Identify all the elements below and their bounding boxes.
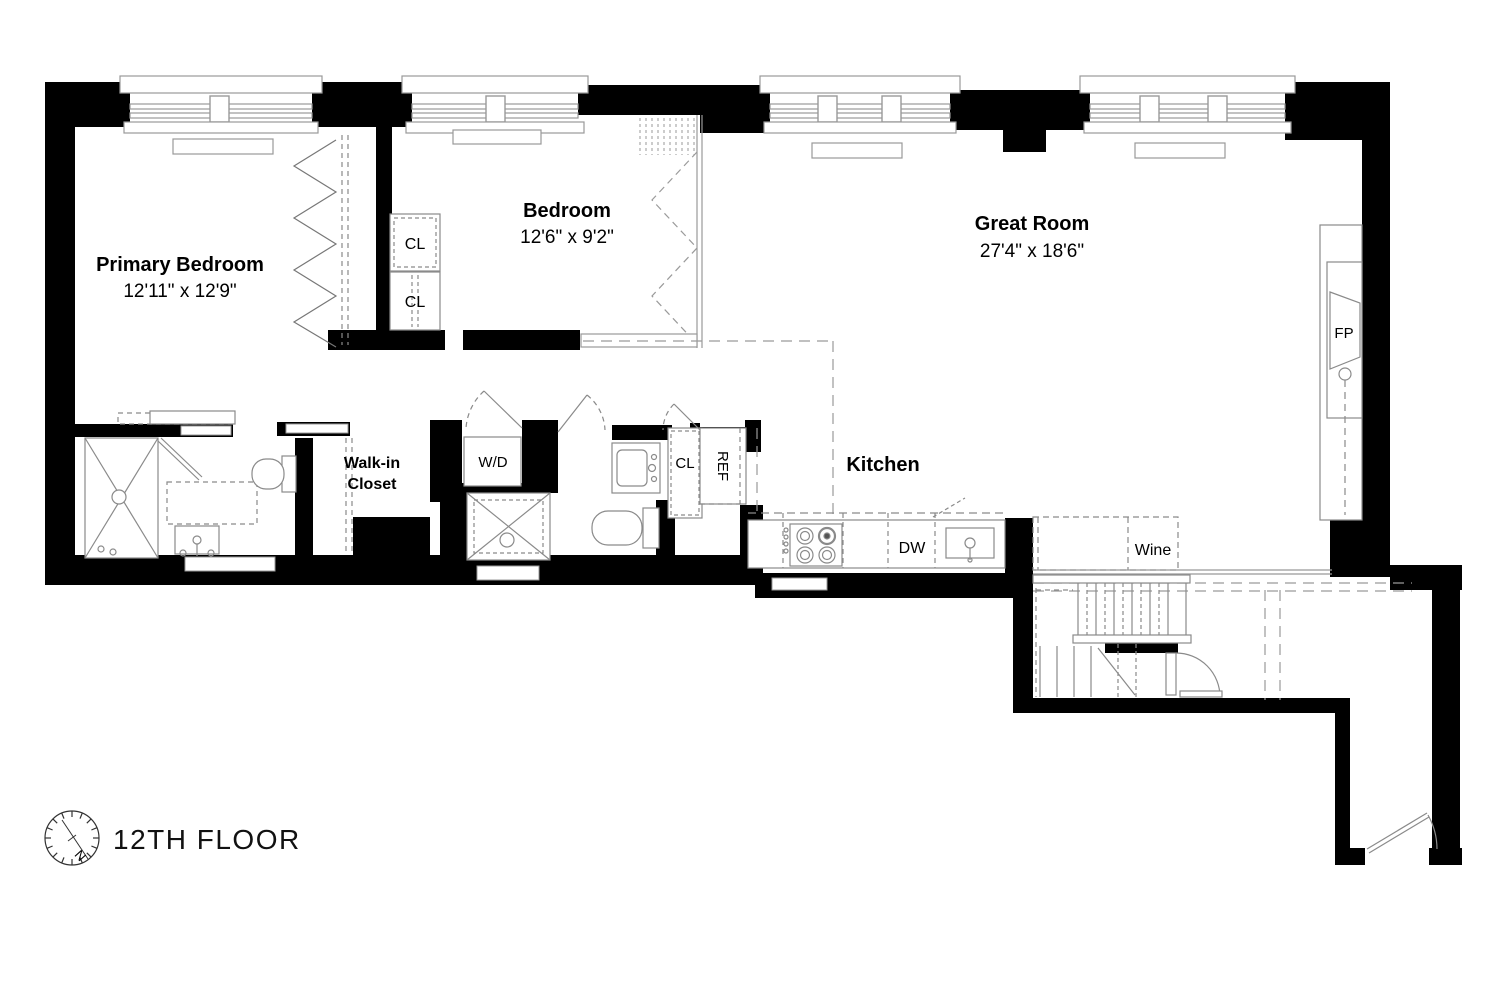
kitchen-label: Kitchen bbox=[846, 454, 919, 476]
primary-bedroom-bench bbox=[118, 411, 235, 424]
window-great-room-1 bbox=[760, 76, 960, 133]
window-great-room-2 bbox=[1080, 76, 1295, 133]
dishwasher-label: DW bbox=[899, 540, 927, 557]
walkin-closet-label-line1: Walk-in bbox=[344, 455, 400, 472]
great-room-label: Great Room bbox=[975, 213, 1089, 235]
floor-plan-page: Primary Bedroom 12'11" x 12'9" Bedroom 1… bbox=[0, 0, 1500, 1000]
primary-bedroom-label: Primary Bedroom bbox=[96, 254, 264, 276]
closet-1-label: CL bbox=[405, 236, 426, 253]
fireplace-unit bbox=[1320, 225, 1362, 520]
compass-north-label: N bbox=[72, 847, 89, 864]
walkin-closet-label-line2: Closet bbox=[348, 476, 398, 493]
pocket-door-walkin bbox=[286, 424, 348, 433]
primary-closet-bifold-doors bbox=[294, 135, 348, 347]
bedroom-label: Bedroom bbox=[523, 200, 611, 222]
primary-bedroom-dims: 12'11" x 12'9" bbox=[123, 281, 236, 302]
washer-dryer-unit bbox=[464, 391, 522, 486]
washer-dryer-label: W/D bbox=[478, 454, 507, 471]
toilet-2-icon bbox=[592, 508, 659, 548]
window-bedroom bbox=[402, 76, 588, 133]
bedroom-dims: 12'6" x 9'2" bbox=[520, 227, 614, 248]
floor-title: 12TH FLOOR bbox=[113, 824, 301, 855]
cl-closets bbox=[390, 214, 440, 330]
great-room-dims: 27'4" x 18'6" bbox=[980, 241, 1084, 262]
closet-3-label: CL bbox=[675, 455, 694, 472]
radiators bbox=[173, 130, 1225, 158]
stairs bbox=[1033, 575, 1222, 697]
refrigerator-label: REF bbox=[714, 451, 731, 481]
toilet-icon bbox=[252, 456, 296, 492]
bedroom-hatch-marks bbox=[640, 118, 694, 155]
labels: Primary Bedroom 12'11" x 12'9" Bedroom 1… bbox=[96, 200, 1354, 855]
floor-plan-svg: Primary Bedroom 12'11" x 12'9" Bedroom 1… bbox=[0, 0, 1500, 1000]
stair-door bbox=[1166, 653, 1222, 697]
stove-icon bbox=[784, 524, 842, 566]
pocket-door-primary-bath bbox=[181, 426, 231, 435]
wine-counter bbox=[1033, 517, 1332, 574]
bath-2-door bbox=[558, 395, 605, 432]
closet-2-label: CL bbox=[405, 294, 426, 311]
shower-2-icon bbox=[467, 493, 550, 560]
wine-label: Wine bbox=[1135, 542, 1172, 559]
kitchen-counter bbox=[748, 498, 1005, 568]
vanity-sink-icon bbox=[167, 482, 257, 556]
primary-bathroom bbox=[85, 438, 296, 558]
vanity-2-sink-icon bbox=[612, 443, 660, 493]
fireplace-label: FP bbox=[1334, 325, 1353, 342]
compass-icon: N bbox=[45, 811, 99, 865]
window-primary-bedroom bbox=[120, 76, 322, 133]
fixture-linework bbox=[85, 115, 1437, 853]
